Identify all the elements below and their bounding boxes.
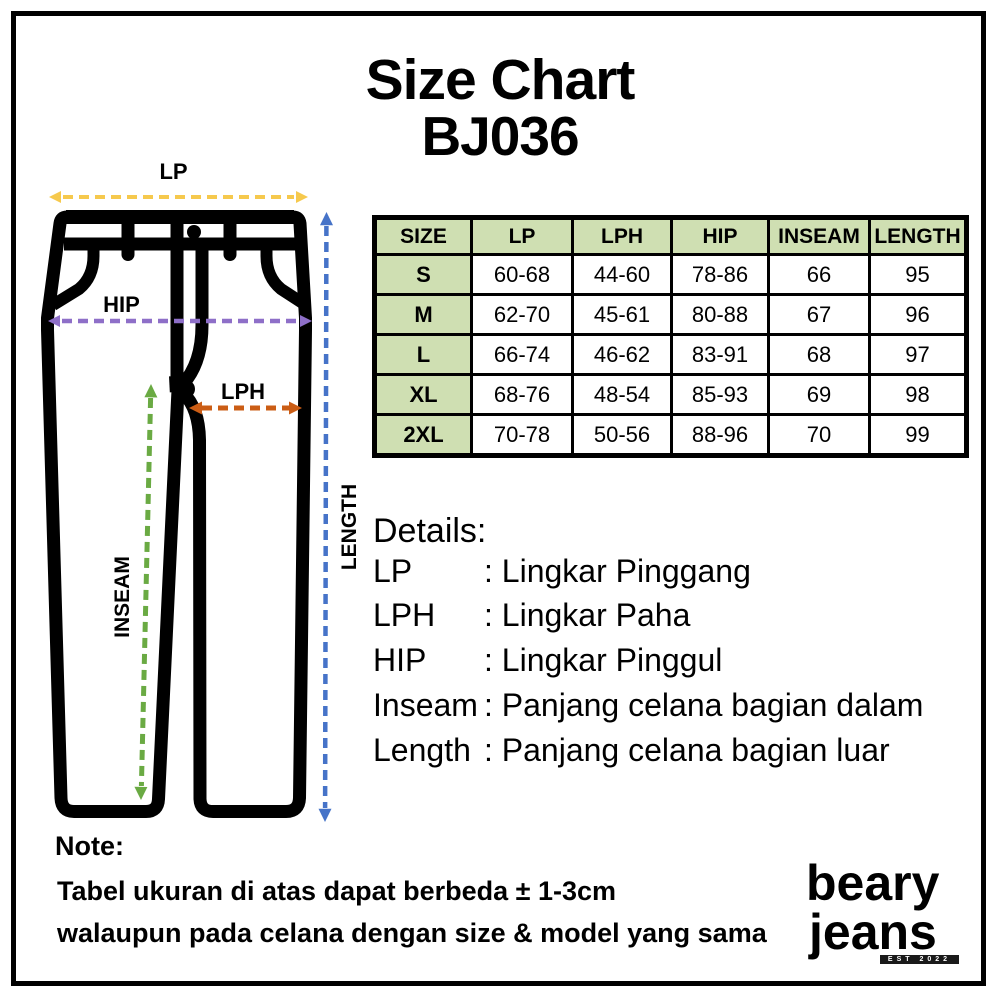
- svg-text:LP: LP: [159, 159, 187, 184]
- svg-text:LENGTH: LENGTH: [338, 484, 361, 570]
- svg-text:HIP: HIP: [103, 292, 140, 317]
- svg-text:LPH: LPH: [221, 379, 265, 404]
- svg-text:INSEAM: INSEAM: [111, 556, 134, 638]
